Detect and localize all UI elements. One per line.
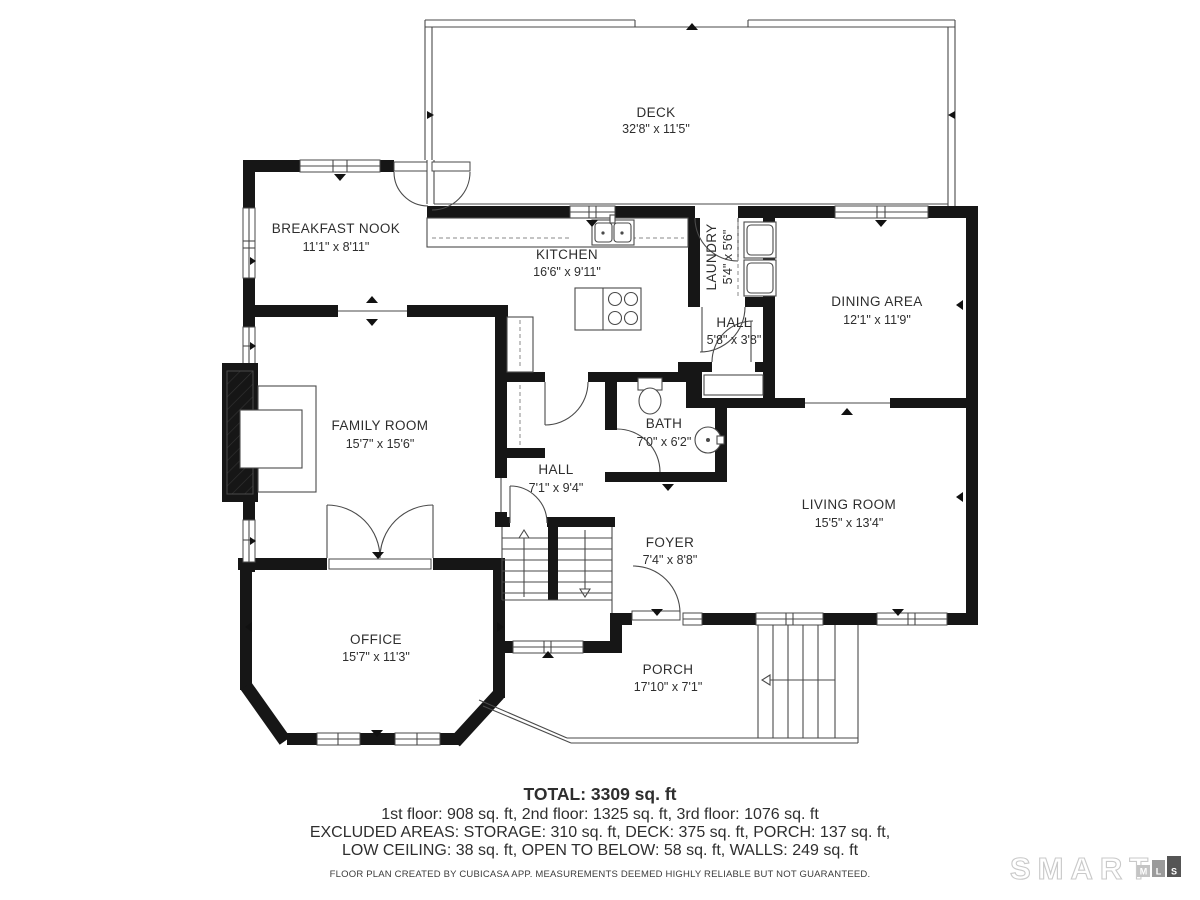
room-label-dining-area: DINING AREA 12'1" x 11'9" [831,294,922,327]
deck-outline [425,20,955,206]
kitchen-sink-icon [592,215,634,245]
room-label-family-room: FAMILY ROOM 15'7" x 15'6" [332,418,429,451]
svg-text:32'8" x 11'5": 32'8" x 11'5" [622,122,690,136]
svg-text:OFFICE: OFFICE [350,632,402,647]
excluded-areas-text-1: EXCLUDED AREAS: STORAGE: 310 sq. ft, DEC… [310,824,890,841]
steps-direction-arrow-icon [762,675,770,685]
room-label-bath: BATH 7'0" x 6'2" [637,416,692,449]
window [243,208,255,278]
window [300,160,380,172]
room-label-breakfast-nook: BREAKFAST NOOK 11'1" x 8'11" [272,221,400,254]
window [683,613,702,625]
svg-text:LIVING ROOM: LIVING ROOM [802,497,896,512]
total-area-text: TOTAL: 3309 sq. ft [524,784,677,804]
room-label-deck: DECK 32'8" x 11'5" [622,105,690,136]
svg-text:12'1" x 11'9": 12'1" x 11'9" [843,313,911,327]
svg-text:DINING AREA: DINING AREA [831,294,922,309]
closet-shelf [704,375,763,395]
window [756,613,823,625]
floor-plan-canvas: DECK 32'8" x 11'5" BREAKFAST NOOK 11'1" … [0,0,1200,900]
svg-text:15'5" x 13'4": 15'5" x 13'4" [815,516,884,530]
window [570,206,615,218]
svg-text:PORCH: PORCH [643,662,694,677]
svg-text:KITCHEN: KITCHEN [536,247,598,262]
stove-icon [575,288,641,330]
area-summary: TOTAL: 3309 sq. ft 1st floor: 908 sq. ft… [310,784,890,880]
svg-text:7'4" x 8'8": 7'4" x 8'8" [643,553,698,567]
svg-text:LAUNDRY: LAUNDRY [704,223,719,290]
svg-text:11'1" x 8'11": 11'1" x 8'11" [303,240,370,254]
room-label-foyer: FOYER 7'4" x 8'8" [643,535,698,567]
disclaimer-text: FLOOR PLAN CREATED BY CUBICASA APP. MEAS… [330,869,871,880]
room-label-hall-upper: HALL 5'8" x 3'8" [707,315,762,347]
kitchen-counter [427,218,688,247]
window [317,733,360,745]
room-label-porch: PORCH 17'10" x 7'1" [634,662,703,694]
svg-text:FAMILY ROOM: FAMILY ROOM [332,418,429,433]
porch-steps [758,625,835,738]
svg-text:16'6" x 9'11": 16'6" x 9'11" [533,265,601,279]
svg-text:S: S [1171,867,1177,877]
svg-text:BREAKFAST NOOK: BREAKFAST NOOK [272,221,400,236]
svg-text:DECK: DECK [636,105,675,120]
stairs-up-arrow-icon [519,530,529,538]
svg-text:FOYER: FOYER [646,535,695,550]
svg-text:HALL: HALL [716,315,751,330]
svg-text:15'7" x 15'6": 15'7" x 15'6" [346,437,415,451]
svg-text:7'0" x 6'2": 7'0" x 6'2" [637,435,692,449]
room-label-living-room: LIVING ROOM 15'5" x 13'4" [802,497,896,530]
floor-plan-page: DECK 32'8" x 11'5" BREAKFAST NOOK 11'1" … [0,0,1200,900]
window [835,206,928,218]
toilet-icon [638,378,662,414]
svg-text:5'4" x 5'6": 5'4" x 5'6" [721,230,735,285]
smartmls-wordmark: SMART [1010,851,1155,886]
room-labels: DECK 32'8" x 11'5" BREAKFAST NOOK 11'1" … [272,105,923,694]
svg-text:BATH: BATH [646,416,683,431]
window [877,613,947,625]
fireplace-icon [222,363,316,502]
svg-text:17'10" x 7'1": 17'10" x 7'1" [634,680,703,694]
svg-text:M: M [1140,867,1148,877]
svg-text:L: L [1156,867,1162,877]
floor-areas-text: 1st floor: 908 sq. ft, 2nd floor: 1325 s… [381,806,819,823]
window [395,733,440,745]
svg-text:15'7" x 11'3": 15'7" x 11'3" [342,650,410,664]
svg-text:HALL: HALL [538,462,573,477]
room-label-hall-lower: HALL 7'1" x 9'4" [529,462,584,495]
smartmls-logo: SMART M L S [1010,851,1181,886]
room-label-office: OFFICE 15'7" x 11'3" [342,632,410,664]
room-label-kitchen: KITCHEN 16'6" x 9'11" [533,247,601,279]
excluded-areas-text-2: LOW CEILING: 38 sq. ft, OPEN TO BELOW: 5… [342,842,859,859]
svg-text:7'1" x 9'4": 7'1" x 9'4" [529,481,584,495]
svg-text:5'8" x 3'8": 5'8" x 3'8" [707,333,762,347]
